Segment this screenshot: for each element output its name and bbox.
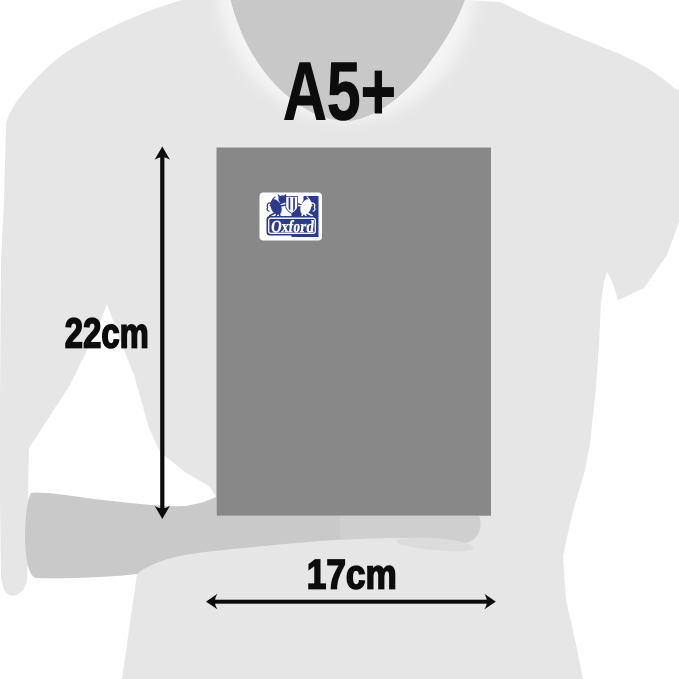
svg-text:17cm: 17cm <box>307 551 397 598</box>
svg-text:22cm: 22cm <box>65 310 149 357</box>
svg-text:A5+: A5+ <box>283 46 396 138</box>
svg-text:Oxford: Oxford <box>270 217 315 236</box>
